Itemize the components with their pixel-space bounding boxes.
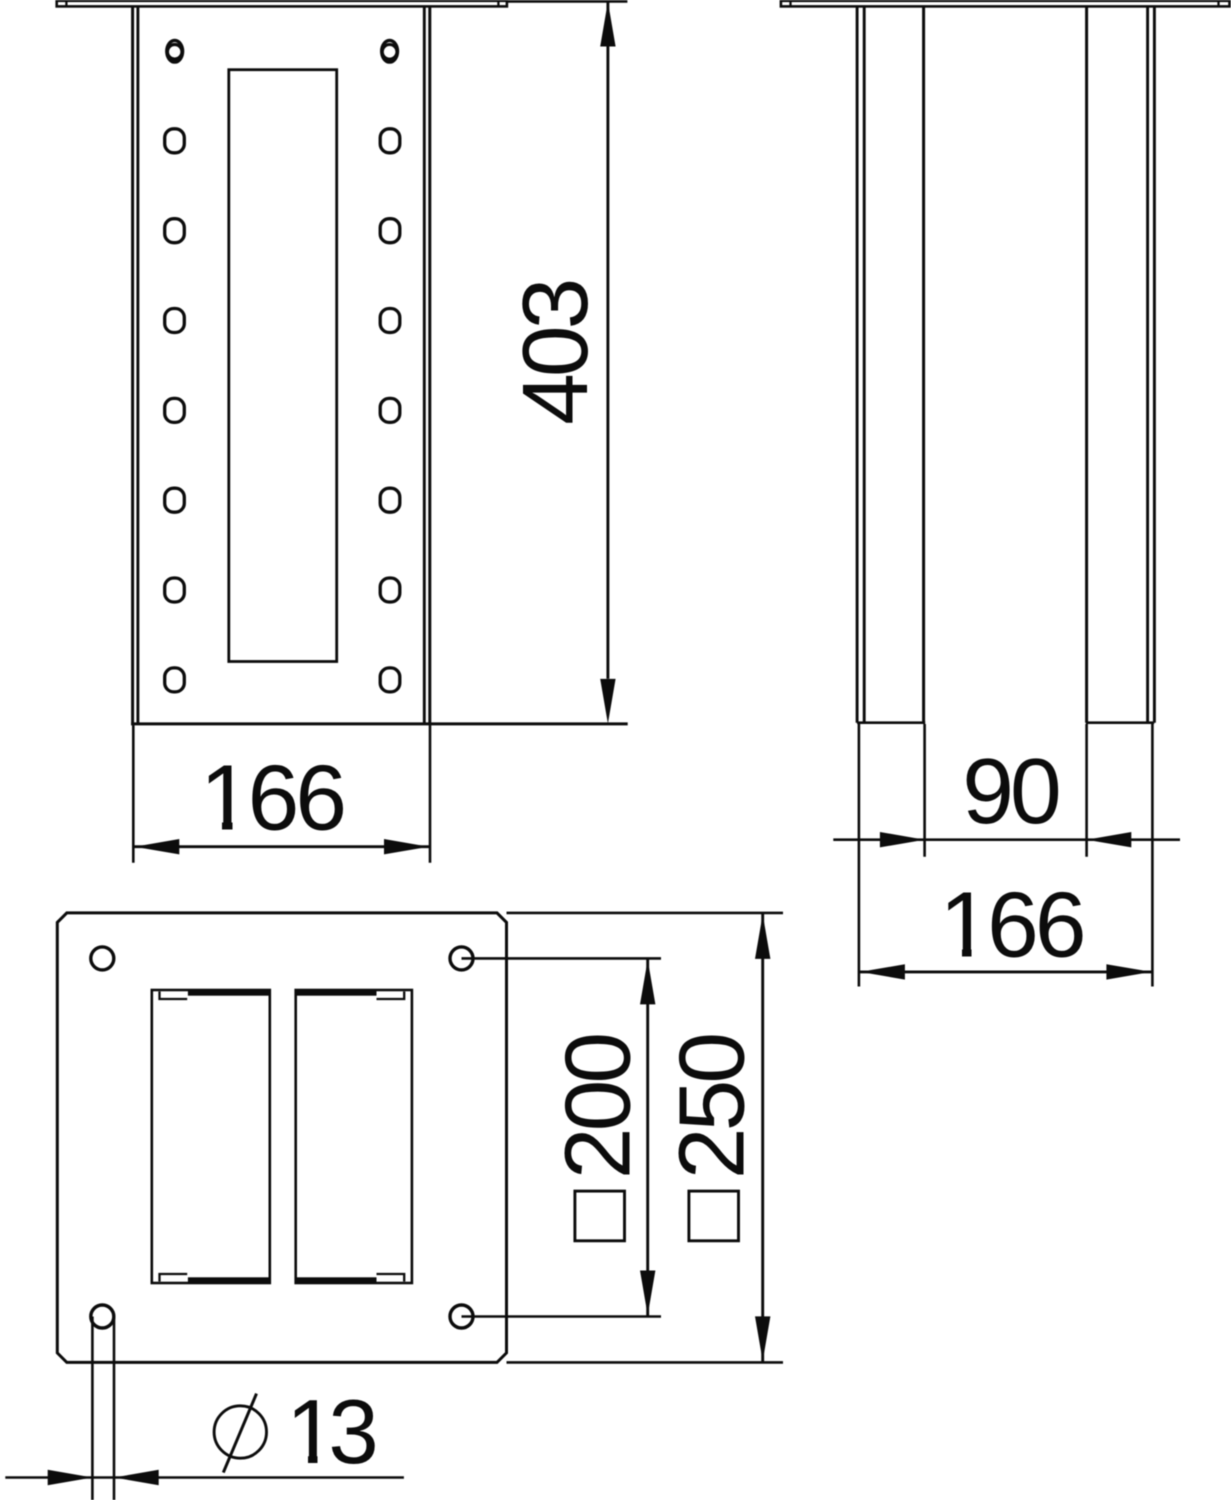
svg-text:13: 13 [286,1382,375,1483]
svg-text:200: 200 [546,1035,650,1179]
svg-text:250: 250 [659,1035,763,1179]
svg-text:166: 166 [200,746,343,850]
svg-text:90: 90 [962,739,1059,843]
svg-text:403: 403 [503,281,607,424]
svg-text:166: 166 [939,873,1082,977]
